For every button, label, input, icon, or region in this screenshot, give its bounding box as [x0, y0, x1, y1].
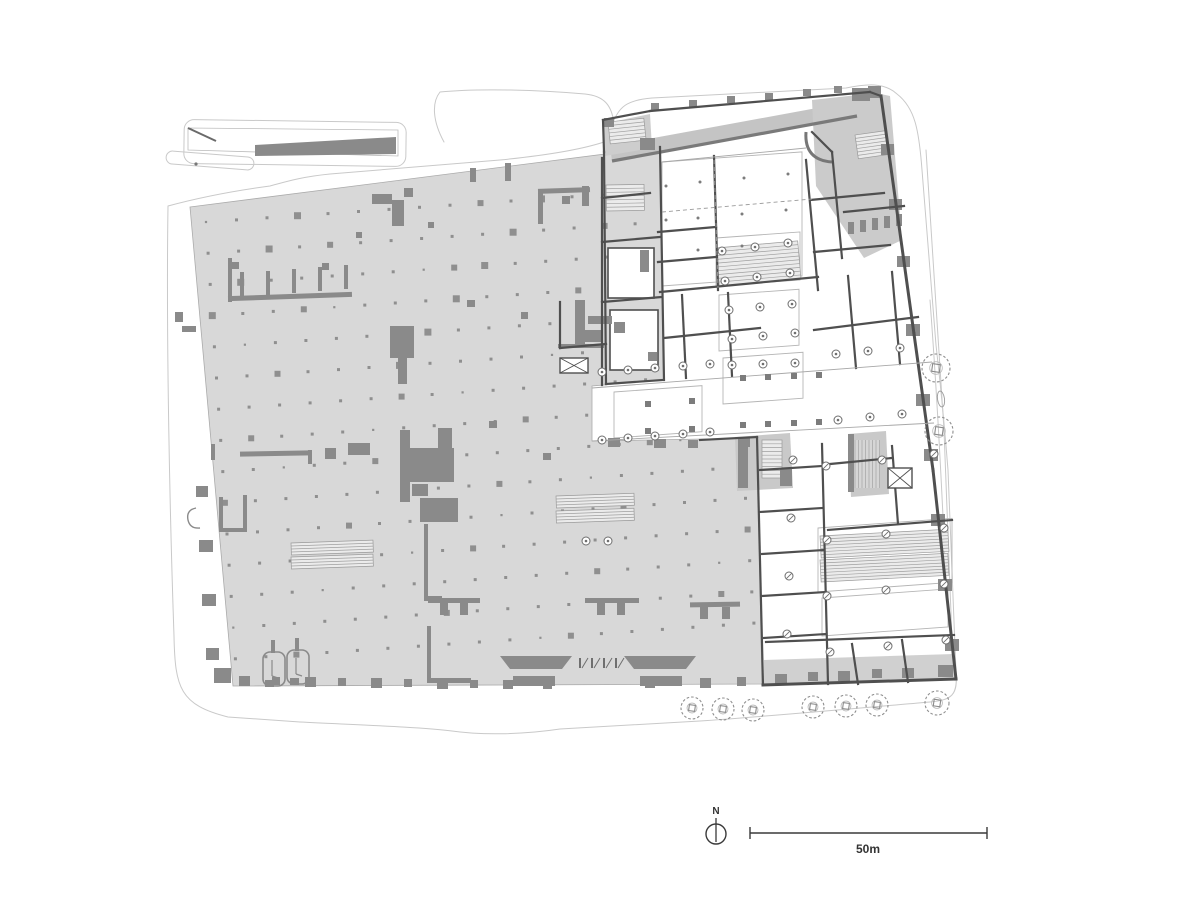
- column-dot: [500, 514, 502, 516]
- wall-fragment: [640, 138, 655, 150]
- column-dot: [280, 435, 283, 438]
- column-dot: [418, 206, 421, 209]
- wall-fragment: [240, 272, 244, 296]
- wall-fragment: [585, 598, 639, 603]
- column-dot: [705, 374, 708, 377]
- column-dot: [447, 643, 450, 646]
- wall-fragment: [206, 648, 219, 660]
- scale-bar: 50m: [750, 827, 987, 856]
- wall-fragment: [427, 626, 431, 682]
- wall-fragment: [648, 352, 657, 361]
- small-column-dot: [743, 177, 746, 180]
- column-dot: [365, 335, 368, 338]
- column-dot: [382, 584, 385, 587]
- column-dot: [278, 404, 281, 407]
- round-column-center: [899, 347, 902, 350]
- wall-segment: [658, 257, 716, 262]
- entrance-canopy: [624, 656, 696, 669]
- column-dot: [291, 591, 294, 594]
- column-dot: [311, 433, 314, 436]
- wall-fragment: [424, 524, 428, 596]
- column-dot: [327, 242, 333, 248]
- column-dot: [718, 562, 720, 564]
- column-dot: [522, 387, 525, 390]
- column-dot: [478, 641, 481, 644]
- tree-trunk-square: [720, 706, 727, 713]
- column-dot: [594, 539, 597, 542]
- column-dot: [777, 526, 780, 529]
- column-dot: [523, 416, 529, 422]
- round-column-center: [794, 332, 797, 335]
- wall-fragment: [588, 316, 612, 324]
- wall-segment: [814, 317, 918, 330]
- wall-fragment: [505, 163, 511, 181]
- wall-fragment: [214, 668, 231, 683]
- column-dot: [420, 237, 423, 240]
- column-dot: [487, 326, 490, 329]
- column-dot: [470, 516, 473, 519]
- column-dot: [585, 414, 588, 417]
- column-dot: [390, 239, 393, 242]
- tree-icon: [712, 698, 734, 720]
- column-dot: [465, 453, 468, 456]
- column-dot: [553, 385, 556, 388]
- wall-segment: [848, 276, 856, 368]
- round-column-center: [728, 309, 731, 312]
- column-dot: [504, 576, 507, 579]
- column-dot: [459, 360, 462, 363]
- wall-segment: [762, 592, 826, 596]
- page: N 50m: [0, 0, 1200, 902]
- column-dot: [693, 187, 696, 190]
- column-dot: [478, 200, 484, 206]
- column-dot: [539, 637, 541, 639]
- column-dot: [557, 447, 560, 450]
- column-dot: [392, 270, 395, 273]
- column-dot: [492, 389, 495, 392]
- round-column-center: [721, 250, 724, 253]
- column-dot: [399, 394, 405, 400]
- column-dot: [333, 306, 335, 308]
- square-column: [765, 374, 771, 380]
- floor-plate: [190, 147, 762, 686]
- column-dot: [463, 422, 466, 425]
- column-dot: [270, 279, 273, 282]
- column-dot: [775, 495, 778, 498]
- round-column-center: [754, 246, 757, 249]
- reference-dashed-line: [662, 199, 812, 212]
- wall-fragment: [338, 678, 346, 686]
- column-dot: [754, 212, 761, 219]
- column-dot: [309, 401, 312, 404]
- column-dot: [429, 362, 432, 365]
- wall-fragment: [438, 428, 452, 448]
- column-dot: [337, 368, 340, 371]
- wall-fragment: [727, 96, 735, 103]
- platform-diagonal-wall: [188, 128, 216, 141]
- tree-trunk-square: [874, 702, 881, 709]
- round-column-center: [709, 363, 712, 366]
- wall-fragment: [219, 497, 223, 531]
- column-dot: [725, 216, 728, 219]
- wall-fragment: [440, 603, 448, 615]
- wall-fragment: [239, 676, 250, 686]
- tree-trunk-square: [750, 707, 757, 714]
- wall-fragment: [834, 86, 842, 93]
- column-dot: [424, 299, 427, 302]
- column-dot: [689, 595, 692, 598]
- wall-fragment: [437, 679, 448, 689]
- wall-fragment: [543, 453, 551, 460]
- column-dot: [433, 424, 436, 427]
- column-dot: [600, 632, 603, 635]
- wall-fragment: [513, 676, 555, 686]
- wall-fragment: [295, 638, 299, 651]
- wall-fragment: [640, 250, 649, 272]
- wall-fragment: [597, 603, 605, 615]
- column-dot: [723, 185, 726, 188]
- wall-fragment: [700, 678, 711, 688]
- gray-floor-plate: [190, 147, 762, 686]
- entrance-canopy: [500, 656, 572, 669]
- column-dot: [402, 426, 405, 429]
- column-dot: [262, 624, 265, 627]
- column-dot: [372, 429, 374, 431]
- column-dot: [254, 499, 257, 502]
- wall-fragment: [872, 218, 878, 230]
- square-column: [740, 422, 746, 428]
- column-dot: [376, 491, 379, 494]
- square-column: [816, 372, 822, 378]
- wall-fragment: [651, 103, 659, 110]
- column-dot: [548, 322, 551, 325]
- column-dot: [520, 356, 523, 359]
- detached-platform: [166, 119, 407, 170]
- site-outline-path: [434, 90, 614, 142]
- column-dot: [370, 397, 373, 400]
- platform-dot: [194, 162, 197, 165]
- round-column-center: [585, 540, 588, 543]
- small-column-dot: [785, 209, 788, 212]
- wall-fragment: [196, 486, 208, 497]
- square-column: [689, 426, 695, 432]
- column-dot: [590, 477, 592, 479]
- wall-segment: [762, 550, 824, 554]
- column-dot: [634, 222, 637, 225]
- column-dot: [752, 622, 755, 625]
- column-dot: [502, 545, 505, 548]
- column-dot: [718, 591, 724, 597]
- round-column-center: [835, 353, 838, 356]
- north-arrow: N: [706, 806, 726, 844]
- wall-fragment: [318, 267, 322, 291]
- column-dot: [354, 618, 357, 621]
- column-dot: [453, 295, 460, 302]
- column-dot: [683, 501, 686, 504]
- wall-fragment: [392, 200, 404, 226]
- column-dot: [779, 557, 782, 560]
- column-dot: [352, 587, 355, 590]
- escalator-hatch: [556, 493, 634, 508]
- column-dot: [750, 590, 753, 593]
- column-dot: [567, 603, 570, 606]
- column-dot: [287, 528, 290, 531]
- column-dot: [769, 402, 771, 404]
- wall-fragment: [398, 358, 407, 384]
- column-dot: [691, 626, 694, 629]
- north-label: N: [712, 806, 719, 817]
- column-dot: [357, 210, 360, 213]
- column-dot: [294, 212, 301, 219]
- column-dot: [283, 466, 285, 468]
- square-column: [645, 401, 651, 407]
- round-column-center: [762, 335, 765, 338]
- escalator-hatch: [762, 440, 782, 478]
- wall-fragment: [372, 194, 392, 204]
- column-dot: [293, 652, 299, 658]
- wall-fragment: [860, 220, 866, 232]
- round-column-center: [759, 306, 762, 309]
- wall-fragment: [427, 678, 471, 683]
- column-dot: [207, 252, 210, 255]
- wall-fragment: [521, 312, 528, 319]
- column-dot: [766, 370, 769, 373]
- column-dot: [551, 354, 553, 356]
- escalator-hatch: [556, 508, 634, 523]
- column-dot: [781, 588, 784, 591]
- column-dot: [568, 633, 574, 639]
- wall-fragment: [428, 598, 480, 603]
- column-dot: [343, 462, 346, 465]
- column-dot: [738, 403, 741, 406]
- round-column-center: [709, 431, 712, 434]
- platform-band: [166, 151, 255, 171]
- curved-wall: [188, 508, 200, 528]
- column-dot: [388, 208, 391, 211]
- tree-icon: [802, 696, 824, 718]
- round-column-center: [607, 540, 610, 543]
- column-dot: [441, 549, 444, 552]
- column-dot: [246, 374, 249, 377]
- column-dot: [451, 265, 457, 271]
- courtyard-outline: [822, 589, 948, 636]
- scale-label: 50m: [856, 842, 880, 856]
- small-column-dot: [741, 213, 744, 216]
- round-column-center: [627, 437, 630, 440]
- wall-fragment: [390, 326, 414, 358]
- wall-fragment: [538, 190, 543, 224]
- wall-fragment: [780, 468, 792, 486]
- column-dot: [327, 212, 330, 215]
- column-dot: [673, 375, 679, 381]
- column-dot: [307, 370, 310, 373]
- square-column: [791, 373, 797, 379]
- wall-fragment: [202, 594, 216, 606]
- column-dot: [565, 572, 568, 575]
- column-dot: [248, 406, 251, 409]
- column-dot: [304, 339, 307, 342]
- column-dot: [325, 651, 328, 654]
- wall-fragment: [584, 330, 602, 342]
- square-column: [791, 420, 797, 426]
- round-column-center: [724, 280, 727, 283]
- wall-fragment: [803, 89, 811, 96]
- column-dot: [341, 431, 344, 434]
- round-column-center: [869, 416, 872, 419]
- column-dot: [526, 449, 529, 452]
- wall-fragment: [688, 440, 698, 448]
- wall-fragment: [467, 300, 475, 307]
- column-dot: [544, 260, 547, 263]
- tree-trunk-square: [689, 705, 696, 712]
- column-dot: [424, 329, 431, 336]
- column-dot: [413, 582, 416, 585]
- column-dot: [205, 221, 207, 223]
- column-dot: [620, 474, 623, 477]
- column-dot: [417, 645, 420, 648]
- square-column: [765, 421, 771, 427]
- column-dot: [411, 552, 413, 554]
- wall-fragment: [617, 603, 625, 615]
- column-dot: [234, 657, 237, 660]
- column-dot: [284, 497, 287, 500]
- column-dot: [322, 589, 324, 591]
- column-dot: [510, 229, 517, 236]
- wall-fragment: [562, 196, 570, 204]
- column-dot: [666, 251, 669, 254]
- column-dot: [476, 609, 479, 612]
- column-dot: [409, 520, 412, 523]
- column-dot: [301, 306, 307, 312]
- column-dot: [677, 407, 680, 410]
- column-dot: [315, 495, 318, 498]
- column-dot: [575, 258, 578, 261]
- column-dot: [685, 532, 688, 535]
- small-column-dot: [697, 217, 700, 220]
- round-column-center: [731, 338, 734, 341]
- wall-fragment: [371, 678, 382, 688]
- wall-fragment: [325, 448, 336, 459]
- column-dot: [699, 310, 705, 316]
- wall-segment: [760, 508, 822, 512]
- column-dot: [217, 408, 220, 411]
- column-dot: [235, 218, 238, 221]
- column-dot: [535, 574, 538, 577]
- wall-fragment: [872, 669, 882, 678]
- column-dot: [716, 530, 719, 533]
- wall-fragment: [852, 88, 870, 101]
- tree-trunk-square: [933, 699, 940, 706]
- column-dot: [232, 627, 234, 629]
- column-dot: [630, 630, 633, 633]
- column-dot: [571, 195, 574, 198]
- column-dot: [516, 293, 519, 296]
- wall-fragment: [243, 495, 247, 529]
- column-dot: [462, 391, 464, 393]
- wall-segment: [658, 227, 716, 232]
- column-dot: [496, 481, 502, 487]
- wall-fragment: [884, 216, 890, 228]
- column-dot: [372, 458, 378, 464]
- wall-fragment: [765, 93, 773, 100]
- column-dot: [653, 503, 656, 506]
- column-dot: [583, 383, 586, 386]
- column-dot: [241, 312, 244, 315]
- column-dot: [226, 533, 229, 536]
- column-dot: [752, 181, 758, 187]
- column-dot: [323, 620, 326, 623]
- column-dot: [616, 412, 619, 415]
- small-column-dot: [665, 219, 668, 222]
- column-dot: [668, 312, 675, 319]
- column-dot: [687, 563, 690, 566]
- column-dot: [646, 410, 649, 413]
- column-dot: [537, 605, 540, 608]
- column-dot: [673, 345, 676, 348]
- wall-fragment: [489, 421, 497, 428]
- column-dot: [563, 541, 566, 544]
- small-column-dot: [697, 249, 700, 252]
- column-dot: [481, 262, 488, 269]
- column-dot: [506, 607, 509, 610]
- wall-fragment: [640, 676, 682, 686]
- tree-trunk-square: [810, 704, 817, 711]
- round-column-center: [654, 435, 657, 438]
- column-dot: [209, 283, 212, 286]
- escalator-hatch: [291, 554, 373, 569]
- column-dot: [518, 324, 521, 327]
- square-column: [689, 398, 695, 404]
- site-outline-path: [926, 150, 953, 678]
- wall-fragment: [348, 443, 370, 455]
- column-dot: [331, 275, 334, 278]
- wall-fragment: [356, 232, 362, 238]
- round-column-center: [654, 367, 657, 370]
- wall-fragment: [470, 168, 476, 182]
- wall-fragment: [808, 672, 818, 681]
- column-dot: [209, 312, 216, 319]
- column-dot: [361, 272, 364, 275]
- column-dot: [346, 523, 352, 529]
- wall-fragment: [460, 603, 468, 615]
- round-column-center: [731, 364, 734, 367]
- wall-fragment: [470, 680, 478, 688]
- tree-icon: [922, 354, 950, 382]
- column-dot: [380, 553, 383, 556]
- column-dot: [533, 543, 536, 546]
- column-dot: [339, 399, 342, 402]
- wall-fragment: [722, 607, 730, 619]
- column-dot: [481, 233, 484, 236]
- column-dot: [423, 269, 425, 271]
- wall-fragment: [175, 312, 183, 322]
- column-dot: [703, 343, 706, 346]
- round-column-center: [794, 362, 797, 365]
- column-dot: [745, 527, 751, 533]
- column-dot: [744, 497, 747, 500]
- round-column-center: [787, 242, 790, 245]
- column-dot: [581, 351, 584, 354]
- round-column-center: [867, 350, 870, 353]
- tree-icon: [835, 695, 857, 717]
- column-dot: [542, 229, 545, 232]
- column-dot: [230, 595, 233, 598]
- round-column-center: [627, 369, 630, 372]
- round-column-center: [762, 363, 765, 366]
- column-dot: [546, 291, 549, 294]
- round-column-center: [789, 272, 792, 275]
- platform-wedge: [255, 137, 396, 156]
